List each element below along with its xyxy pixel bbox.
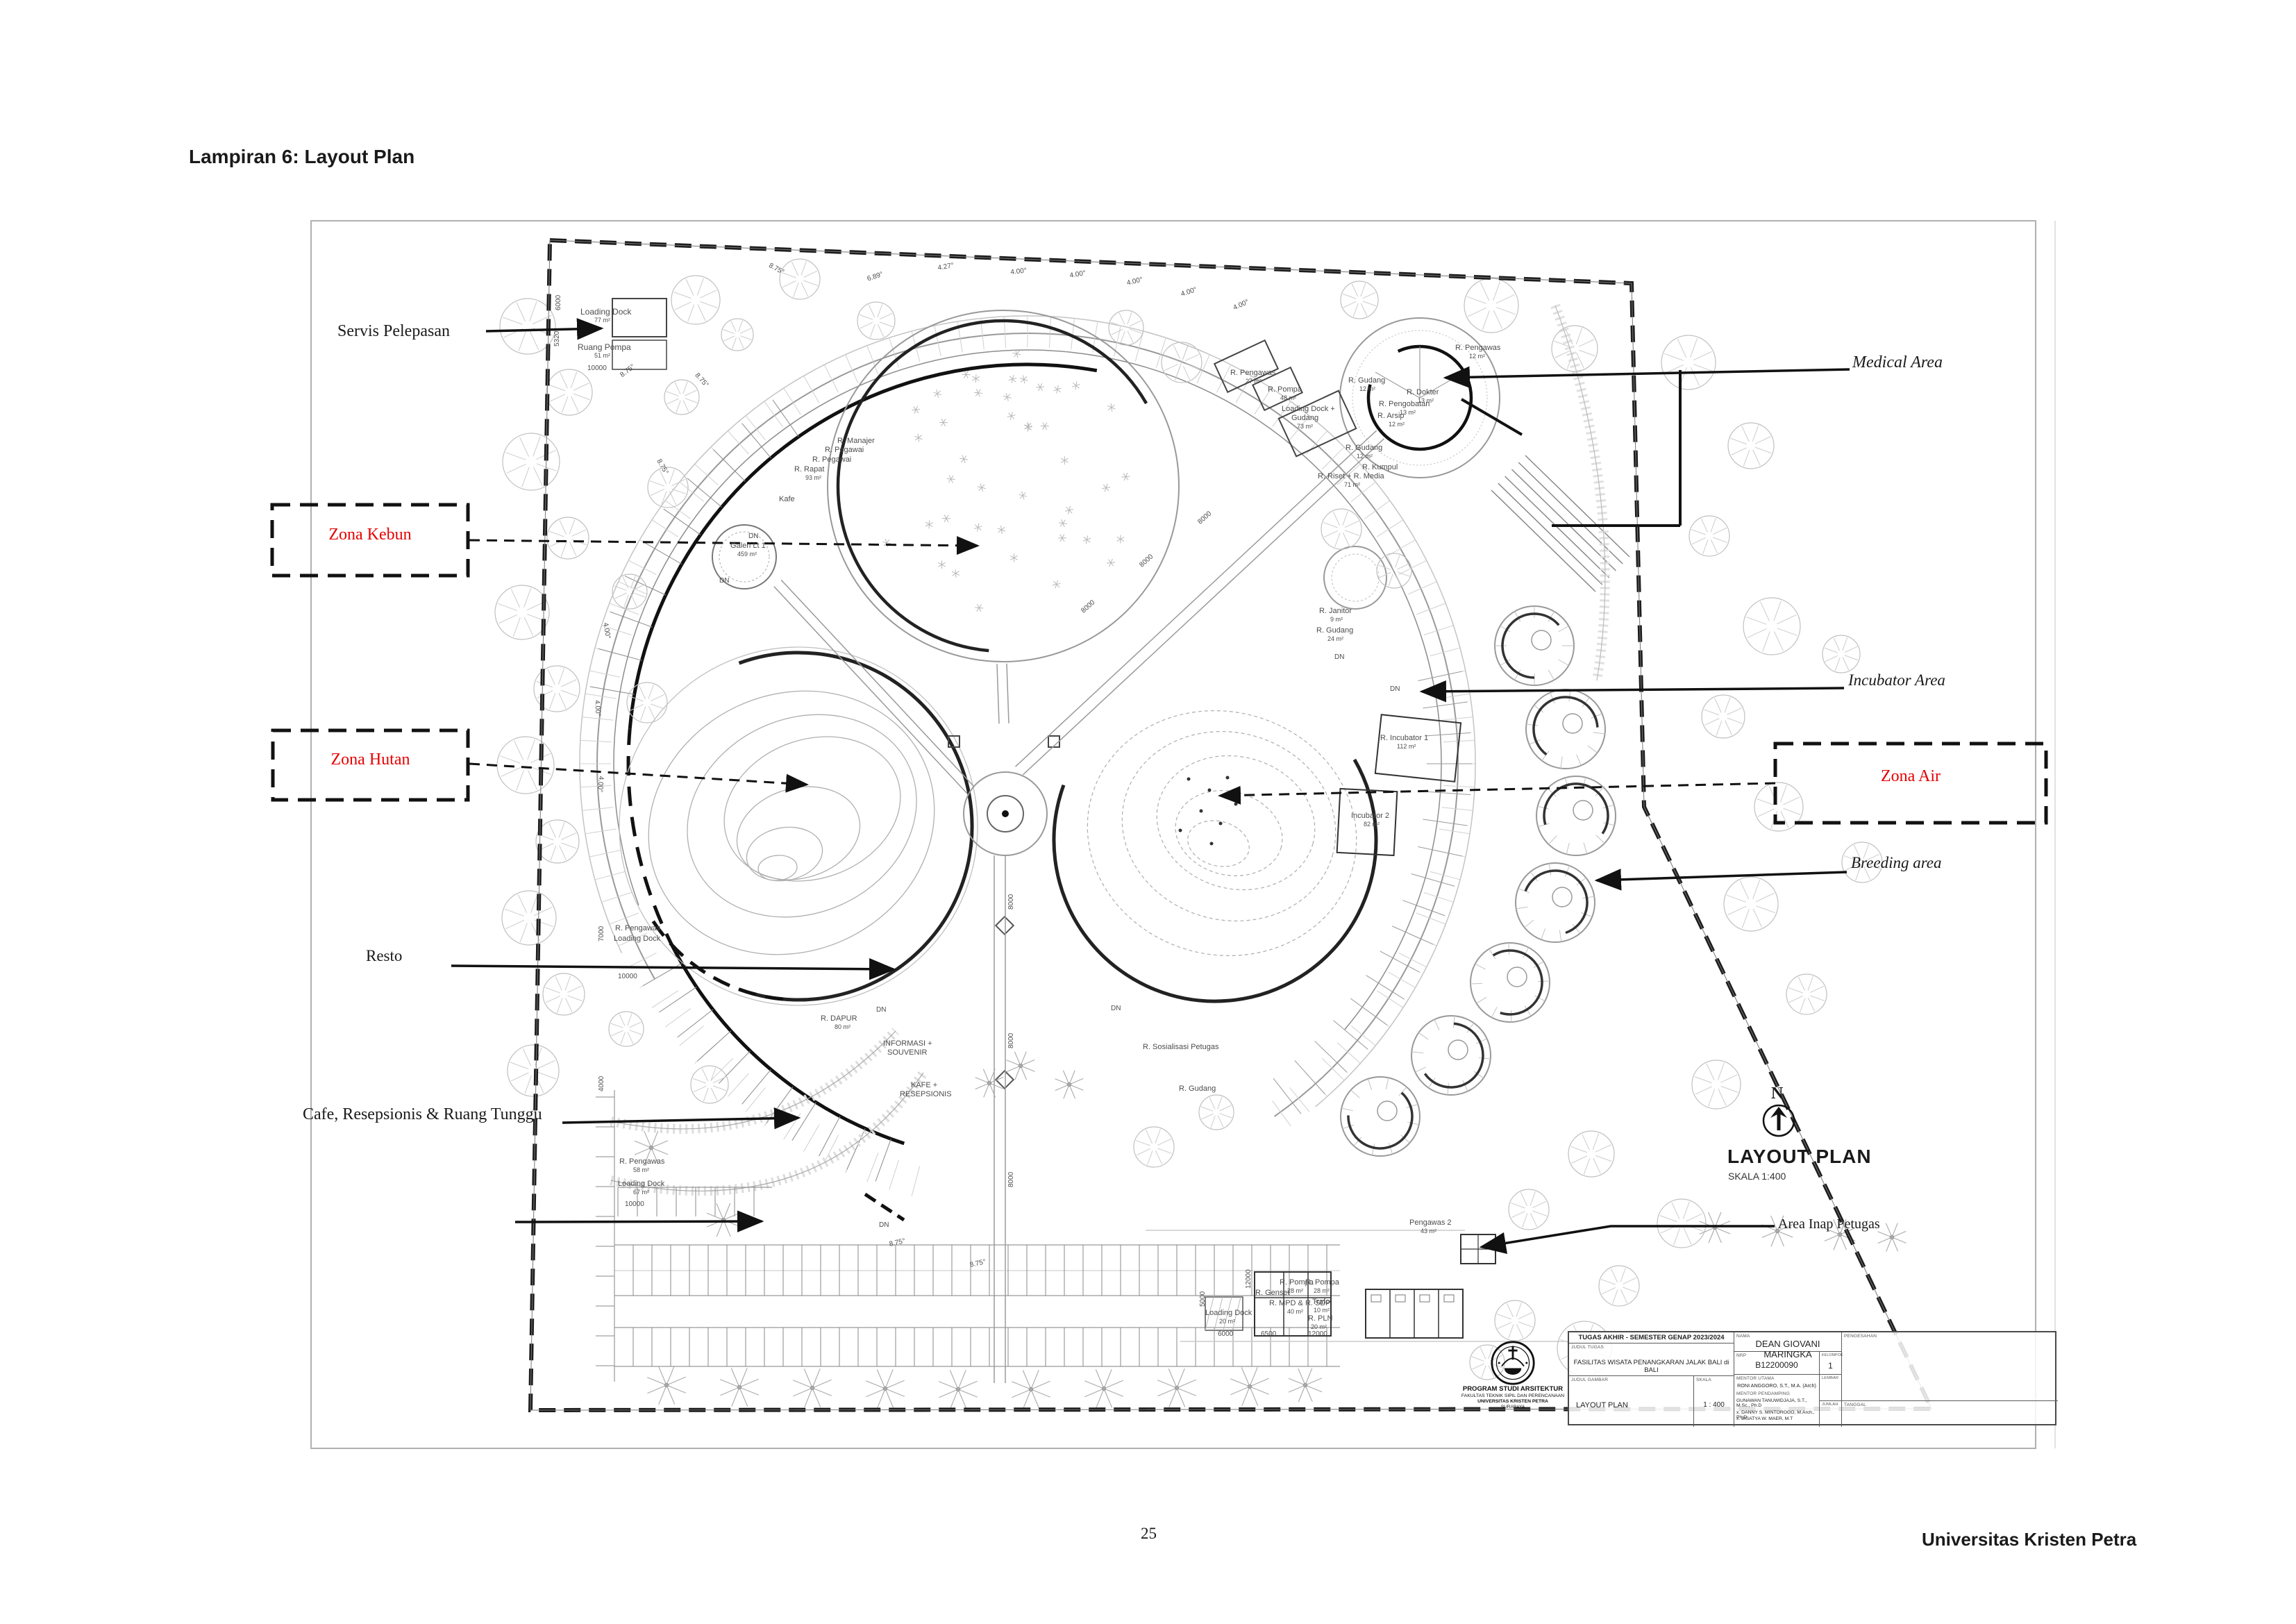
- plan-room-label: R. Pengawas: [1455, 344, 1500, 352]
- north-letter: N: [1771, 1085, 1783, 1103]
- plan-room-label: 4.00°: [1232, 299, 1250, 312]
- tb-skala: 1 : 400: [1694, 1401, 1734, 1409]
- tb-pengesahan-cell: PENGESAHAN: [1841, 1332, 2058, 1400]
- plan-room-label: 8.75°: [619, 364, 637, 379]
- tb-judul-tugas-cell: JUDUL TUGAS FASILITAS WISATA PENANGKARAN…: [1569, 1343, 1734, 1376]
- plan-title: LAYOUT PLAN: [1727, 1146, 1872, 1168]
- plan-room-label: 8.75°: [655, 458, 669, 476]
- plan-room-label: RESEPSIONIS: [900, 1091, 952, 1098]
- plan-room-label: R. Rapat: [794, 466, 824, 474]
- tb-judul-tugas: FASILITAS WISATA PENANGKARAN JALAK BALI …: [1569, 1359, 1734, 1374]
- plan-room-label: 8000: [1197, 510, 1213, 526]
- plan-room-label: 8.75°: [767, 262, 785, 276]
- plan-room-label: 12 m²: [1389, 421, 1405, 428]
- plan-room-label: Loading Dock: [618, 1180, 664, 1188]
- plan-room-label: 82 m²: [1364, 821, 1380, 828]
- plan-room-label: 8000: [1080, 599, 1096, 614]
- plan-room-label: R. Gudang: [1316, 627, 1353, 635]
- north-arrow-icon: [1761, 1103, 1798, 1140]
- plan-room-label: KAFE +: [911, 1082, 937, 1089]
- plan-room-label: Loading Dock: [614, 935, 660, 943]
- plan-room-label: Loading Dock +: [1282, 405, 1335, 413]
- tb-jumlah-cell: JUMLAH: [1819, 1400, 1841, 1427]
- plan-room-label: DN: [1334, 654, 1344, 661]
- plan-room-label: 4.27°: [937, 262, 955, 272]
- plan-room-label: R. Pompa: [1268, 386, 1302, 394]
- plan-room-label: 8.75°: [969, 1259, 987, 1269]
- title-block: TUGAS AKHIR - SEMESTER GENAP 2023/2024 J…: [1568, 1331, 2056, 1425]
- plan-room-label: R. Incubator 1: [1380, 735, 1428, 742]
- tb-judul-tugas-label: JUDUL TUGAS: [1571, 1345, 1604, 1350]
- plan-room-label: 4000: [598, 1076, 605, 1091]
- plan-room-label: 58 m²: [633, 1167, 649, 1173]
- zona-air-box: Zona Air: [1775, 744, 2046, 823]
- plan-room-label: R. Dokter: [1407, 389, 1439, 396]
- plan-room-label: 8000: [1008, 894, 1015, 910]
- plan-room-label: R. PLN: [1308, 1315, 1332, 1323]
- tb-skala-cell: SKALA 1 : 400: [1693, 1376, 1734, 1427]
- plan-room-label: 71 m²: [1344, 482, 1360, 488]
- plan-room-label: 10000: [587, 365, 607, 372]
- label-area-inap-petugas: Area Inap Petugas: [1778, 1216, 1880, 1232]
- plan-room-label: 12 m²: [1469, 353, 1485, 360]
- tb-kelompok: 1: [1820, 1361, 1841, 1371]
- plan-room-label: 28 m²: [1314, 1288, 1330, 1294]
- document-page: Lampiran 6: Layout Plan Loading Dock77 m…: [0, 0, 2296, 1624]
- zona-air-label: Zona Air: [1881, 767, 1941, 786]
- tb-nrp-cell: NRP B12200090: [1734, 1352, 1819, 1375]
- tb-nrp-label: NRP: [1736, 1353, 1746, 1358]
- plan-room-label: R. Pengobatan: [1379, 401, 1430, 408]
- plan-room-label: 4.00°: [593, 700, 601, 717]
- plan-room-label: R. Pengawas: [615, 925, 660, 932]
- plan-room-label: 73 m²: [1297, 424, 1313, 430]
- plan-room-label: 48 m²: [1280, 395, 1296, 401]
- institution-block: PROGRAM STUDI ARSITEKTUR FAKULTAS TEKNIK…: [1458, 1340, 1568, 1426]
- plan-room-label: DN: [876, 1007, 886, 1014]
- tb-lembar-label: LEMBAR: [1822, 1376, 1838, 1380]
- plan-room-label: Kafe: [779, 496, 795, 503]
- plan-room-label: Trafo: [1312, 1298, 1330, 1306]
- plan-room-label: 4.00°: [1010, 268, 1027, 276]
- footer-university: Universitas Kristen Petra: [1922, 1529, 2136, 1550]
- plan-room-label: 112 m²: [1397, 744, 1416, 750]
- plan-room-label: Incubator 2: [1351, 812, 1389, 820]
- tb-kelompok-cell: KELOMPOK 1: [1819, 1352, 1841, 1375]
- institution-faculty: FAKULTAS TEKNIK SIPIL DAN PERENCANAAN: [1458, 1393, 1568, 1399]
- label-medical-area: Medical Area: [1852, 353, 1943, 372]
- plan-room-label: 6000: [1218, 1331, 1233, 1338]
- plan-room-label: DN: [1111, 1005, 1121, 1012]
- plan-room-label: 12 m²: [1357, 453, 1373, 460]
- label-breeding-area: Breeding area: [1851, 854, 1942, 872]
- plan-room-label: 9 m²: [1330, 617, 1343, 623]
- plan-room-label: R. Sosialisasi Petugas: [1143, 1044, 1218, 1051]
- plan-room-label: 43 m²: [1421, 1228, 1436, 1234]
- plan-room-label: 20 m²: [1219, 1319, 1235, 1325]
- plan-room-label: 12000: [1308, 1331, 1327, 1338]
- tb-tanggal-label: TANGGAL: [1844, 1403, 1866, 1407]
- plan-room-label: 7000: [598, 926, 605, 941]
- plan-room-label: R. Pompa: [1305, 1279, 1339, 1287]
- plan-room-label: 8000: [1008, 1033, 1015, 1048]
- zona-kebun-label: Zona Kebun: [328, 526, 411, 544]
- tb-nama-cell: NAMA DEAN GIOVANI MARINGKA: [1734, 1332, 1841, 1352]
- plan-room-label: DN: [719, 578, 729, 585]
- plan-room-label: 67 m²: [633, 1189, 649, 1196]
- plan-room-label: 5320: [554, 331, 561, 346]
- tb-pengesahan-label: PENGESAHAN: [1844, 1334, 1877, 1339]
- plan-room-label: 28 m²: [1287, 1288, 1303, 1294]
- plan-room-label: 8000: [1139, 553, 1155, 569]
- plan-room-label: R. DAPUR: [821, 1015, 857, 1023]
- plan-room-label: SOUVENIR: [887, 1049, 927, 1057]
- tb-judul-gambar-cell: JUDUL GAMBAR LAYOUT PLAN: [1569, 1376, 1693, 1427]
- plan-room-label: R. Pegawai: [825, 446, 864, 454]
- label-cafe-resepsionis: Cafe, Resepsionis & Ruang Tunggu: [303, 1105, 542, 1124]
- label-incubator-area: Incubator Area: [1848, 671, 1945, 689]
- plan-room-label: 4.00°: [596, 776, 604, 792]
- plan-room-label: 51 m²: [594, 353, 610, 359]
- plan-scale: SKALA 1:400: [1728, 1171, 1786, 1182]
- plan-room-label: 24 m²: [1327, 636, 1343, 642]
- plan-room-label: 93 m²: [805, 475, 821, 481]
- zona-hutan-box: Zona Hutan: [273, 730, 468, 800]
- plan-room-label: Galeri Lt 1: [730, 542, 766, 550]
- plan-room-label: DN: [748, 533, 758, 540]
- zona-kebun-box: Zona Kebun: [272, 505, 468, 576]
- tb-mentor-cell: MENTOR UTAMA RONI ANGGORO, S.T., M.A. (A…: [1734, 1375, 1819, 1427]
- plan-room-label: R. Riset + R. Media: [1318, 473, 1384, 480]
- tb-judul-gambar: LAYOUT PLAN: [1576, 1401, 1700, 1409]
- plan-room-label: 8.75°: [889, 1238, 906, 1248]
- plan-room-label: DN: [1390, 686, 1400, 693]
- tb-mentor-pendamping-1: GUNAWAN TANUWIDJAJA, S.T., M.Sc., Ph.D: [1736, 1398, 1818, 1408]
- plan-room-label: R. Kumpul: [1362, 464, 1398, 471]
- tb-judul-gambar-label: JUDUL GAMBAR: [1571, 1378, 1608, 1382]
- plan-room-label: R. Genset: [1255, 1289, 1290, 1297]
- plan-room-label: 40 m²: [1287, 1309, 1303, 1315]
- plan-room-label: 10 m²: [1314, 1307, 1330, 1314]
- plan-room-label: 4.00°: [1069, 270, 1087, 280]
- institution-program: PROGRAM STUDI ARSITEKTUR: [1458, 1386, 1568, 1393]
- plan-room-label: R. Pegawai: [812, 456, 851, 464]
- plan-room-label: 6500: [1261, 1331, 1276, 1338]
- plan-room-label: R. Arsip: [1377, 412, 1405, 420]
- tb-mentor-utama-label: MENTOR UTAMA: [1736, 1376, 1775, 1381]
- plan-room-label: R. Manajer: [837, 437, 875, 445]
- plan-room-label: 8.75°: [694, 372, 710, 389]
- plan-room-label: INFORMASI +: [883, 1040, 932, 1048]
- plan-room-label: 80 m²: [835, 1024, 850, 1030]
- tb-header-cell: TUGAS AKHIR - SEMESTER GENAP 2023/2024: [1569, 1332, 1734, 1343]
- plan-room-label: 10000: [618, 973, 637, 980]
- tb-nama-label: NAMA: [1736, 1334, 1750, 1339]
- page-number: 25: [1141, 1525, 1157, 1543]
- tb-tanggal-cell: TANGGAL: [1841, 1400, 2058, 1427]
- plan-room-label: 20 m²: [1311, 1324, 1327, 1330]
- institution-city: SURABAYA: [1458, 1405, 1568, 1410]
- tb-mentor-pendamping-3: x. BISATYA W. MAER, M.T: [1736, 1416, 1821, 1421]
- plan-room-label: 10000: [625, 1201, 644, 1208]
- tb-header: TUGAS AKHIR - SEMESTER GENAP 2023/2024: [1569, 1334, 1734, 1341]
- zona-hutan-label: Zona Hutan: [331, 751, 410, 769]
- plan-room-label: DN: [879, 1222, 889, 1229]
- plan-room-label: Gudang: [1291, 415, 1318, 422]
- plan-room-label: 4.00°: [601, 622, 611, 639]
- label-resto: Resto: [366, 947, 402, 965]
- plan-room-label: 459 m²: [737, 551, 757, 558]
- plan-room-label: 6000: [555, 295, 562, 310]
- label-servis-pelepasan: Servis Pelepasan: [337, 322, 450, 341]
- plan-room-label: 12 m²: [1359, 386, 1375, 392]
- tb-jumlah-label: JUMLAH: [1822, 1403, 1838, 1407]
- plan-room-label: Ruang Pompa: [578, 343, 631, 351]
- plan-room-label: R. Gudang: [1348, 377, 1385, 385]
- tb-lembar-cell: LEMBAR: [1819, 1375, 1841, 1400]
- plan-room-label: R. Pengawas: [1230, 369, 1275, 377]
- plan-room-label: 5000: [1200, 1291, 1207, 1307]
- tb-mentor-utama: RONI ANGGORO, S.T., M.A. (Arch): [1734, 1382, 1819, 1389]
- plan-room-label: 4.00°: [1126, 276, 1143, 287]
- tb-skala-label: SKALA: [1696, 1378, 1711, 1382]
- plan-room-label: 12000: [1246, 1269, 1252, 1289]
- plan-room-label: Loading Dock: [580, 308, 631, 316]
- plan-room-label: Pengawas 2: [1409, 1219, 1452, 1227]
- tb-kelompok-label: KELOMPOK: [1822, 1353, 1843, 1357]
- plan-room-label: 6.89°: [866, 271, 884, 283]
- plan-room-label: R. Gudang: [1346, 444, 1382, 452]
- university-seal-logo: [1490, 1340, 1536, 1386]
- plan-room-label: R. Gudang: [1179, 1085, 1216, 1093]
- plan-room-label: Loading Dock: [1205, 1309, 1252, 1317]
- plan-room-label: 77 m²: [594, 317, 610, 324]
- institution-university: UNIVERSITAS KRISTEN PETRA: [1458, 1399, 1568, 1405]
- plan-room-label: R. Janitor: [1319, 608, 1352, 615]
- plan-room-label: R. Pengawas: [619, 1158, 664, 1166]
- plan-room-label: 27 m²: [1246, 378, 1262, 385]
- plan-room-label: 8000: [1008, 1172, 1015, 1187]
- plan-room-label: 4.00°: [1180, 287, 1198, 299]
- tb-mentor-pendamping-label: MENTOR PENDAMPING: [1736, 1391, 1790, 1396]
- tb-nrp: B12200090: [1734, 1360, 1819, 1370]
